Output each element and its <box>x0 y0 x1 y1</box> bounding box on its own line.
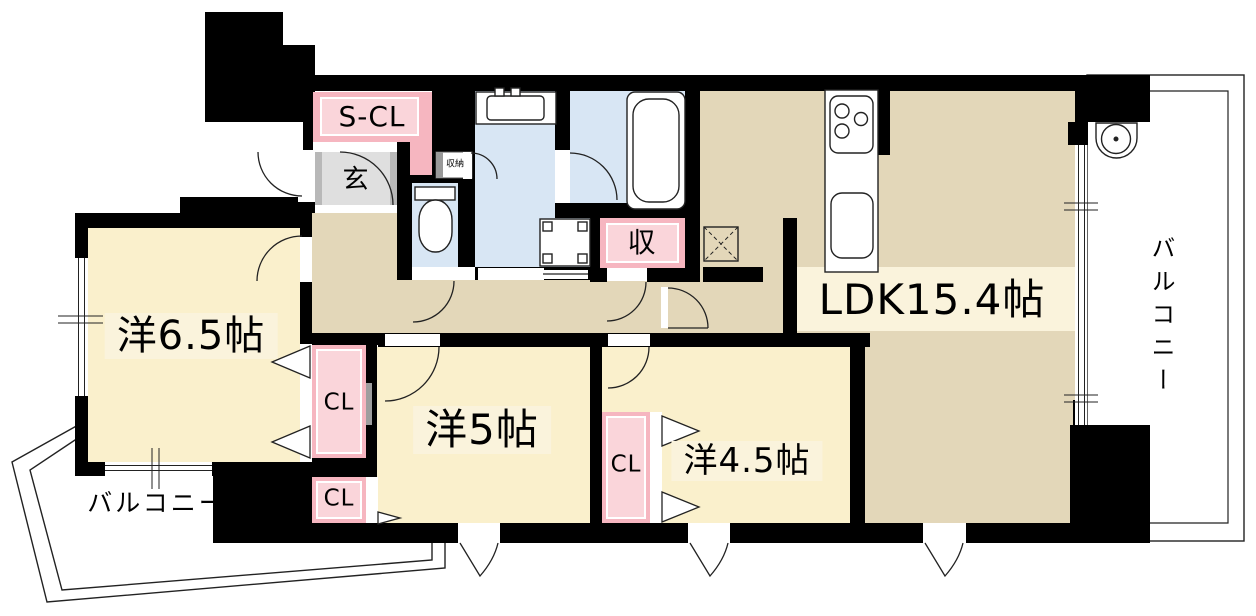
storage-label-shunou: 収納 <box>446 161 464 170</box>
room-label-west1: 洋6.5帖 <box>105 313 278 359</box>
entrance-label: 玄 <box>342 167 369 193</box>
room-label-ldk: LDK15.4帖 <box>807 276 1058 324</box>
storage-label-cl-west1: CL <box>324 392 355 415</box>
stove-icon <box>830 96 873 153</box>
storage-label-s-cl: S-CL <box>338 103 405 131</box>
bathtub-icon <box>627 92 685 209</box>
balcony-label-left: バルコニー <box>87 491 227 516</box>
kitchen-sink-icon <box>831 193 873 258</box>
floorplan-drawing <box>0 0 1256 616</box>
storage-label-cl-west2: CL <box>324 488 355 511</box>
room-label-west3: 洋4.5帖 <box>671 441 822 481</box>
floorplan: LDK15.4帖 洋6.5帖 洋5帖 洋4.5帖 S-CL 玄 収納 収 CL … <box>0 0 1256 616</box>
storage-label-cl-east: CL <box>611 454 642 477</box>
toilet-icon <box>415 187 455 200</box>
room-label-west2: 洋5帖 <box>413 406 551 454</box>
balcony-label-right: バルコニー <box>1149 236 1173 401</box>
storage-label-shu: 収 <box>627 229 656 257</box>
